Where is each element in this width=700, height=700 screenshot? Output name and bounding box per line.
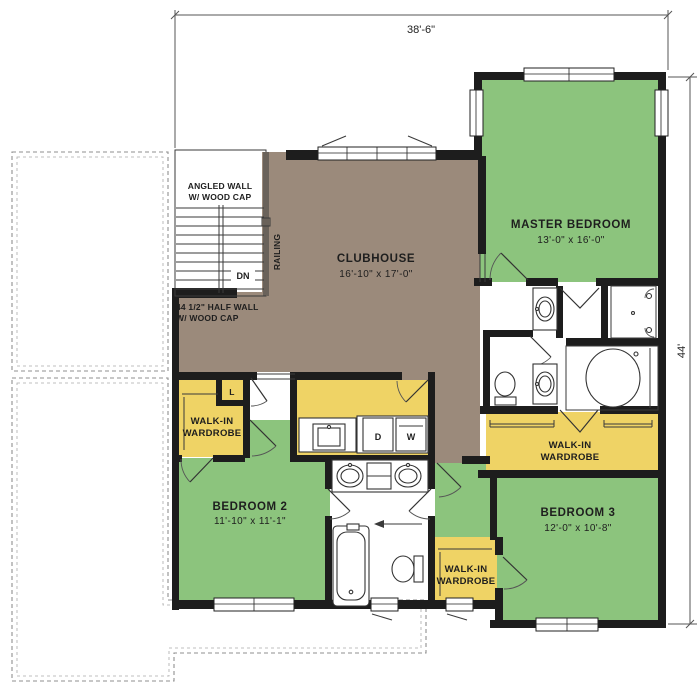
linen-door [251, 378, 267, 406]
bedroom3-window [536, 618, 598, 631]
master-toilet [495, 372, 516, 405]
angled-wall-note-2: W/ WOOD CAP [189, 192, 252, 202]
wardrobe1-label-1: WALK-IN [191, 416, 234, 427]
master-bedroom-label: MASTER BEDROOM [511, 219, 631, 231]
master-left-window [470, 90, 483, 136]
staircase: DN [175, 150, 270, 296]
master-top-window [524, 68, 614, 81]
master-vanity-2 [533, 364, 557, 404]
wardrobe3-window [446, 598, 473, 620]
clubhouse-label: CLUBHOUSE [337, 253, 415, 265]
bedroom3-size: 12'-0" x 10'-8" [544, 523, 612, 534]
angled-wall-note-1: ANGLED WALL [188, 181, 253, 191]
floor-plan-drawing: DN [0, 0, 700, 700]
dryer: D [363, 418, 393, 451]
clubhouse-size: 16'-10" x 17'-0" [339, 269, 413, 280]
bath-right-door [409, 489, 431, 519]
bath-window [371, 598, 398, 620]
master-right-window [655, 90, 668, 136]
wardrobe1-label-2: WARDROBE [183, 428, 242, 439]
toilet [392, 556, 423, 582]
clubhouse-window [318, 136, 436, 160]
master-wardrobe-label-2: WARDROBE [541, 452, 600, 463]
right-dimension: 44' [676, 344, 688, 358]
bedroom3-label: BEDROOM 3 [540, 507, 615, 519]
bedroom2-window [214, 598, 294, 611]
washer: W [396, 418, 426, 451]
shower [611, 286, 656, 338]
wardrobe3-label-1: WALK-IN [445, 564, 488, 575]
bedroom2-label: BEDROOM 2 [212, 501, 287, 513]
toilet-room-door [530, 336, 551, 366]
linen-label: L [229, 387, 234, 397]
bath-vanity [332, 460, 428, 492]
master-bathtub [566, 346, 658, 410]
bedroom2-size: 11'-10" x 11'-1" [214, 516, 286, 527]
top-dimension: 38'-6" [407, 24, 435, 36]
wardrobe3-label-2: WARDROBE [437, 576, 496, 587]
master-bedroom-floor [480, 78, 660, 282]
svg-text:D: D [375, 432, 382, 442]
master-bedroom-size: 13'-0" x 16'-0" [537, 235, 605, 246]
direction-arrow [374, 520, 422, 528]
floor-plan-canvas: DN [0, 0, 700, 700]
master-bath-bifold-door [560, 288, 599, 308]
master-vanity-1 [533, 288, 557, 330]
half-wall-note-1: 44 1/2" HALF WALL [176, 302, 259, 312]
bathtub [333, 524, 369, 606]
svg-text:W: W [407, 432, 416, 442]
laundry-sink [299, 418, 356, 452]
railing-label: RAILING [272, 234, 282, 271]
master-wardrobe-label-1: WALK-IN [549, 440, 592, 451]
half-wall-note-2: W/ WOOD CAP [176, 313, 239, 323]
bath-left-door [328, 489, 350, 519]
stair-down-label: DN [237, 271, 250, 281]
